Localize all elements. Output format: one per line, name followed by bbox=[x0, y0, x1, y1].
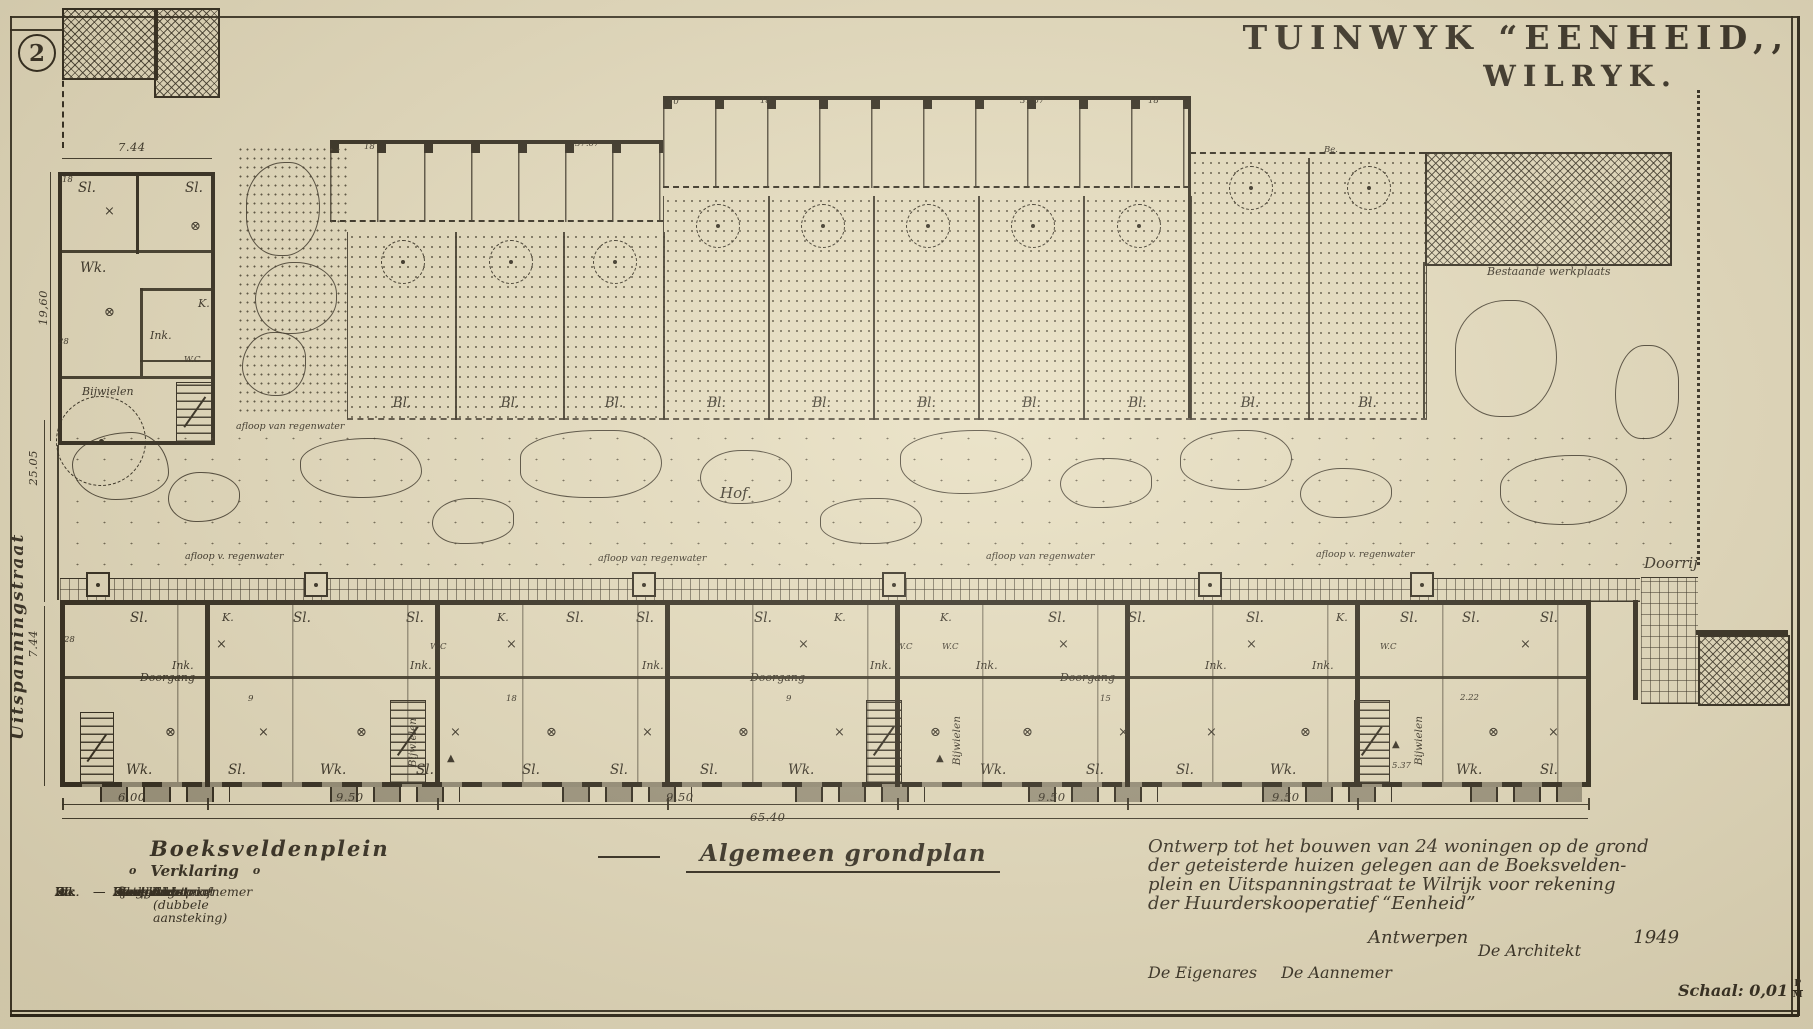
shrub-outline bbox=[1615, 345, 1679, 439]
plan-label: 28 bbox=[64, 636, 75, 645]
dim-line bbox=[44, 606, 45, 786]
bleekveld-plot: Bl. bbox=[347, 232, 457, 420]
project-note: Ontwerp tot het bouwen van 24 woningen o… bbox=[1148, 838, 1668, 981]
dim-tick bbox=[1588, 798, 1590, 810]
plan-label: ⊗ bbox=[1022, 726, 1033, 739]
shrub-outline bbox=[820, 498, 922, 544]
plan-label: 65.40 bbox=[750, 812, 785, 824]
plan-label: Sl. bbox=[1462, 612, 1480, 626]
bleekveld-plot: Bl. bbox=[1190, 158, 1310, 420]
stairs-icon bbox=[176, 382, 214, 443]
plan-label: Doorgang bbox=[140, 672, 195, 683]
note-contractor: De Aannemer bbox=[1281, 965, 1392, 981]
plan-label: Bijwielen bbox=[952, 716, 963, 765]
plan-label: × bbox=[834, 726, 845, 739]
plan-label: Sl. bbox=[754, 612, 772, 626]
dim-line bbox=[50, 172, 51, 441]
plan-label: Sl. bbox=[1246, 612, 1264, 626]
legend-dash: – bbox=[137, 886, 153, 927]
plan-label: afloop van regenwater bbox=[986, 552, 1094, 562]
plan-label: ⊗ bbox=[738, 726, 749, 739]
plan-label: ⊗ bbox=[1300, 726, 1311, 739]
plan-label: Sl. bbox=[566, 612, 584, 626]
garden-wall bbox=[1190, 152, 1425, 154]
note-line: Ontwerp tot het bouwen van 24 woningen o… bbox=[1148, 838, 1668, 856]
basement-windows bbox=[795, 787, 925, 802]
plan-label: 9.50 bbox=[1038, 792, 1066, 804]
shrub-outline bbox=[1455, 300, 1557, 417]
plan-label: 9.50 bbox=[666, 792, 694, 804]
street-name-boeksveldenplein: Boeksveldenplein bbox=[150, 836, 390, 861]
plan-label: Sl. bbox=[228, 764, 246, 778]
plan-label: W.C bbox=[896, 643, 912, 652]
tree-icon bbox=[1011, 204, 1055, 248]
plan-label: × bbox=[1246, 638, 1257, 651]
stairs-icon bbox=[866, 700, 902, 784]
plan-label: 18 bbox=[364, 143, 375, 152]
doorrij-passage bbox=[1641, 577, 1698, 704]
plan-label: Be. bbox=[1324, 146, 1338, 155]
plan-label: Bijwielen bbox=[1414, 716, 1425, 765]
wall bbox=[140, 360, 215, 362]
plan-label: Hof. bbox=[720, 486, 752, 501]
wall bbox=[140, 288, 215, 291]
plan-label: Wk. bbox=[126, 764, 152, 778]
note-line: der geteisterde huizen gelegen aan de Bo… bbox=[1148, 857, 1668, 875]
shrub-outline bbox=[520, 430, 662, 498]
plan-label: 9.50 bbox=[336, 792, 364, 804]
existing-building-nw bbox=[62, 8, 158, 80]
plan-label: × bbox=[506, 638, 517, 651]
plot-label: Bl. bbox=[1128, 397, 1147, 411]
plot-label: Bl. bbox=[917, 397, 936, 411]
plan-label: ⊗ bbox=[930, 726, 941, 739]
plan-label: Sl. bbox=[636, 612, 654, 626]
plan-label: Doorgang bbox=[1060, 672, 1115, 683]
plan-label: Sl. bbox=[293, 612, 311, 626]
plan-label: Sl. bbox=[1400, 612, 1418, 626]
legend: oVerklaringo Ink. — Inkom Wk. — Woonkame… bbox=[55, 862, 274, 886]
shrub-outline bbox=[432, 498, 514, 544]
plan-label: 6.00 bbox=[118, 792, 146, 804]
plan-label: 18 bbox=[506, 695, 517, 704]
plan-label: Wk. bbox=[320, 764, 346, 778]
drawing-title: TUINWYK “EENHEID,, WILRYK. bbox=[1050, 18, 1790, 93]
front-wall bbox=[663, 186, 1190, 188]
shrub-outline bbox=[300, 438, 422, 498]
stairs-icon bbox=[80, 712, 114, 784]
plot-label: Bl. bbox=[605, 397, 624, 411]
plan-label: × bbox=[1548, 726, 1559, 739]
dim-line bbox=[62, 158, 212, 159]
plan-label: Sl. bbox=[1048, 612, 1066, 626]
plan-label: Doorrij bbox=[1644, 556, 1698, 571]
frame-right-outer bbox=[1797, 16, 1800, 1016]
ring-icon: o bbox=[239, 864, 274, 877]
site-boundary-dotted bbox=[1697, 90, 1700, 565]
tree-icon bbox=[906, 204, 950, 248]
planter-icon bbox=[1410, 572, 1434, 597]
plan-label: K. bbox=[1336, 612, 1348, 623]
plan-label: W.C bbox=[1380, 643, 1396, 652]
plot-label: Bl. bbox=[393, 397, 412, 411]
plan-label: 9 bbox=[786, 695, 791, 704]
plan-sheet: 2 TUINWYK “EENHEID,, WILRYK. bbox=[0, 0, 1813, 1029]
title-dash bbox=[598, 856, 660, 858]
plan-label: 25.05 bbox=[28, 450, 40, 485]
legend-symbol-label: Lichtpunt (dubbele aansteking) bbox=[153, 886, 274, 927]
dim-line bbox=[44, 420, 45, 602]
title-line-1: TUINWYK “EENHEID,, bbox=[1050, 18, 1790, 57]
plan-label: × bbox=[104, 205, 115, 218]
plan-label: Ink. bbox=[410, 660, 432, 671]
plan-title: Algemeen grondplan bbox=[598, 840, 1000, 873]
frame-bottom-thick bbox=[10, 1014, 1799, 1017]
shrub-outline bbox=[242, 332, 306, 396]
plan-label: Ink. bbox=[642, 660, 664, 671]
plan-label: Sl. bbox=[78, 182, 96, 196]
shrub-outline bbox=[246, 162, 320, 256]
plan-label: afloop v. regenwater bbox=[185, 552, 284, 562]
bleekveld-plot: Bl. bbox=[563, 232, 665, 420]
basement-windows bbox=[1470, 787, 1582, 802]
plan-label: × bbox=[642, 726, 653, 739]
plan-label: × bbox=[1206, 726, 1217, 739]
wall bbox=[58, 250, 215, 253]
legend-abbr: Be. bbox=[55, 886, 93, 902]
plan-label: Sl. bbox=[416, 764, 434, 778]
plan-label: 10 bbox=[668, 98, 679, 107]
plan-label: Wk. bbox=[1456, 764, 1482, 778]
frame-right-inner bbox=[1791, 16, 1793, 1016]
bay-wall bbox=[60, 600, 65, 787]
plan-label: Sl. bbox=[610, 764, 628, 778]
plan-label: ▲ bbox=[936, 754, 944, 764]
bleekveld-plot: Bl. bbox=[1308, 158, 1427, 420]
plan-label: 19,60 bbox=[38, 290, 50, 325]
bleekveld-plot: Bl. bbox=[663, 196, 770, 420]
plan-label: Sl. bbox=[185, 182, 203, 196]
plan-label: Ink. bbox=[976, 660, 998, 671]
plan-label: × bbox=[258, 726, 269, 739]
plan-label: afloop van regenwater bbox=[598, 554, 706, 564]
plan-label: × bbox=[1058, 638, 1069, 651]
planter-icon bbox=[882, 572, 906, 597]
plan-label: K. bbox=[940, 612, 952, 623]
plan-label: Wk. bbox=[1270, 764, 1296, 778]
plan-label: × bbox=[798, 638, 809, 651]
existing-building-se bbox=[1698, 635, 1790, 706]
plan-label: Bijwielen bbox=[408, 718, 419, 767]
plan-label: W.C bbox=[942, 643, 958, 652]
wall bbox=[136, 172, 139, 254]
plan-label: Sl. bbox=[1540, 612, 1558, 626]
bay-wall bbox=[1586, 600, 1591, 787]
plan-label: 7.44 bbox=[118, 142, 146, 154]
street-name-uitspanningstraat: Uitspanningstraat bbox=[8, 510, 28, 740]
bleekveld-plot: Bl. bbox=[455, 232, 565, 420]
plan-label: W.C bbox=[184, 356, 200, 365]
plan-label: Sl. bbox=[1128, 612, 1146, 626]
plan-label: 15 bbox=[1100, 695, 1111, 704]
scale-fraction: P M bbox=[1792, 980, 1803, 1000]
plan-label: Sl. bbox=[1086, 764, 1104, 778]
tree-icon bbox=[801, 204, 845, 248]
unit-partitions bbox=[330, 144, 663, 222]
plan-label: K. bbox=[834, 612, 846, 623]
plan-label: 9 bbox=[248, 695, 253, 704]
legend-symbol-item: ⊗ – Lichtpunt (dubbele aansteking) bbox=[111, 886, 274, 927]
wall bbox=[58, 376, 215, 379]
plan-label: Sl. bbox=[1176, 764, 1194, 778]
plan-label: Ink. bbox=[870, 660, 892, 671]
tree-icon bbox=[1229, 166, 1273, 210]
wall bbox=[140, 288, 143, 376]
frame-bottom-thin bbox=[10, 1010, 1799, 1012]
tree-icon bbox=[1117, 204, 1161, 248]
plan-label: 5.37 bbox=[1392, 762, 1411, 771]
stairs-icon bbox=[1354, 700, 1390, 784]
plan-label: K. bbox=[198, 298, 210, 309]
plan-label: K. bbox=[222, 612, 234, 623]
plan-label: ▲ bbox=[447, 754, 455, 764]
corner-line bbox=[10, 29, 64, 31]
legend-symbol-glyph: ⊗ bbox=[111, 886, 137, 927]
plan-label: 7.44 bbox=[28, 630, 40, 658]
plan-label: 28 bbox=[58, 338, 69, 347]
plan-label: × bbox=[216, 638, 227, 651]
note-line: der Huurderskooperatief “Eenheid” bbox=[1148, 895, 1668, 913]
plan-label: × bbox=[1520, 638, 1531, 651]
bleekveld-plot: Bl. bbox=[873, 196, 980, 420]
legend-heading: oVerklaringo bbox=[115, 862, 274, 880]
shrub-outline bbox=[1500, 455, 1627, 525]
plan-label: 37.67 bbox=[575, 140, 599, 149]
plan-label: × bbox=[450, 726, 461, 739]
plan-label: Bestaande werkplaats bbox=[1487, 266, 1611, 277]
plan-label: 9.50 bbox=[1272, 792, 1300, 804]
note-city: Antwerpen bbox=[1368, 929, 1468, 947]
legend-dash: — bbox=[93, 886, 113, 902]
plan-label: 2.22 bbox=[1460, 694, 1479, 703]
note-year: 1949 bbox=[1633, 929, 1679, 947]
shrub-outline bbox=[900, 430, 1032, 494]
tree-icon bbox=[381, 240, 425, 284]
existing-workshop bbox=[1425, 152, 1672, 266]
sheet-number-badge: 2 bbox=[18, 34, 56, 72]
plan-label: Sl. bbox=[1540, 764, 1558, 778]
plan-label: Ink. bbox=[172, 660, 194, 671]
title-line-2: WILRYK. bbox=[1050, 59, 1790, 93]
bay-wall bbox=[665, 600, 670, 787]
plot-label: Bl. bbox=[501, 397, 520, 411]
bleekveld-plot: Bl. bbox=[768, 196, 875, 420]
bleekveld-plot: Bl. bbox=[1083, 196, 1192, 420]
planter-icon bbox=[304, 572, 328, 597]
shrub-outline bbox=[1060, 458, 1152, 508]
plan-label: Wk. bbox=[980, 764, 1006, 778]
note-line: plein en Uitspanningstraat te Wilrijk vo… bbox=[1148, 876, 1668, 894]
plan-label: Sl. bbox=[700, 764, 718, 778]
plan-label: 18 bbox=[1148, 97, 1159, 106]
bay-wall bbox=[435, 600, 440, 787]
plan-label: ▲ bbox=[1392, 740, 1400, 750]
plan-label: afloop van regenwater bbox=[236, 422, 344, 432]
plan-label: Sl. bbox=[406, 612, 424, 626]
plan-label: ⊗ bbox=[165, 726, 176, 739]
front-wall bbox=[330, 220, 663, 222]
plan-label: Ink. bbox=[150, 330, 172, 341]
plan-label: Sl. bbox=[130, 612, 148, 626]
planter-icon bbox=[1198, 572, 1222, 597]
legend-heading-text: Verklaring bbox=[150, 862, 239, 880]
plan-label: Bijwielen bbox=[82, 386, 134, 397]
plan-label: Sl. bbox=[522, 764, 540, 778]
plan-label: ⊗ bbox=[104, 306, 115, 319]
bay-wall bbox=[1125, 600, 1130, 787]
note-owner: De Eigenares bbox=[1148, 965, 1257, 981]
plan-label: Ink. bbox=[1312, 660, 1334, 671]
plan-label: Wk. bbox=[80, 262, 106, 276]
plot-label: Bl. bbox=[812, 397, 831, 411]
plot-label: Bl. bbox=[1241, 397, 1260, 411]
scale-denominator: M bbox=[1793, 991, 1803, 1000]
bleekveld-plot: Bl. bbox=[978, 196, 1085, 420]
dim-line bbox=[62, 804, 1588, 805]
tree-icon bbox=[1347, 166, 1391, 210]
unit-partitions bbox=[663, 100, 1190, 188]
plan-label: 37.67 bbox=[1020, 97, 1044, 106]
plan-label: 18 bbox=[62, 176, 73, 185]
planter-icon bbox=[632, 572, 656, 597]
plan-label: afloop v. regenwater bbox=[1316, 550, 1415, 560]
scale-label: Schaal: 0,01 bbox=[1678, 981, 1788, 1000]
shrub-outline bbox=[72, 432, 169, 500]
plan-label: ⊗ bbox=[356, 726, 367, 739]
plan-label: ⊗ bbox=[190, 220, 201, 233]
plot-label: Bl. bbox=[707, 397, 726, 411]
wall bbox=[1633, 600, 1638, 700]
plan-label: × bbox=[1118, 726, 1129, 739]
ring-icon: o bbox=[115, 864, 150, 877]
plan-label: K. bbox=[497, 612, 509, 623]
walkway bbox=[60, 578, 1640, 602]
plot-label: Bl. bbox=[1358, 397, 1377, 411]
plan-label: W.C bbox=[430, 643, 446, 652]
existing-building-nw-2 bbox=[154, 8, 220, 98]
plan-title-text: Algemeen grondplan bbox=[686, 840, 1000, 873]
dim-line bbox=[62, 818, 1588, 819]
bay-wall bbox=[205, 600, 210, 787]
plan-label: ⊗ bbox=[1488, 726, 1499, 739]
planter-icon bbox=[86, 572, 110, 597]
plan-label: 18 bbox=[760, 97, 771, 106]
wall bbox=[58, 172, 62, 445]
plot-label: Bl. bbox=[1022, 397, 1041, 411]
scale-note: Schaal: 0,01 P M bbox=[1678, 980, 1803, 1000]
street-edge bbox=[57, 445, 59, 600]
tree-icon bbox=[489, 240, 533, 284]
tree-icon bbox=[696, 204, 740, 248]
plan-label: ⊗ bbox=[546, 726, 557, 739]
plan-label: Ink. bbox=[1205, 660, 1227, 671]
shrub-outline bbox=[1180, 430, 1292, 490]
tree-icon bbox=[593, 240, 637, 284]
plan-label: Wk. bbox=[788, 764, 814, 778]
plan-label: Doorgang bbox=[750, 672, 805, 683]
